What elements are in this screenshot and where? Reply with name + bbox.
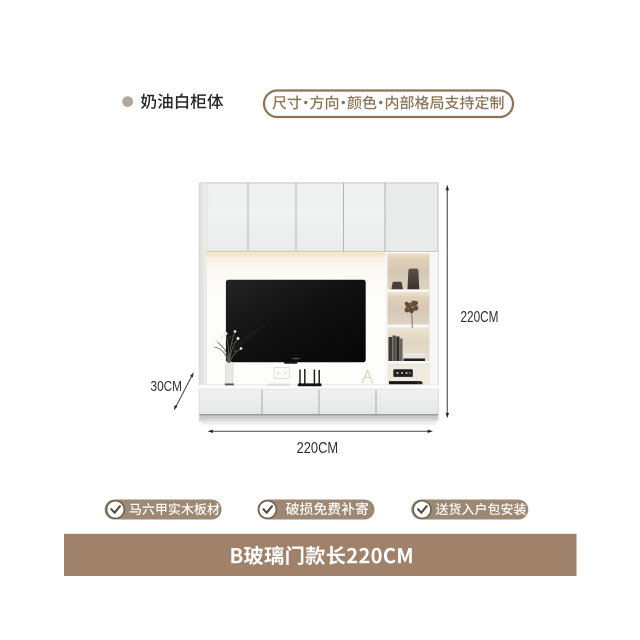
svg-text:220CM: 220CM (461, 309, 499, 326)
svg-text:220CM: 220CM (297, 440, 339, 457)
svg-text:30CM: 30CM (151, 378, 183, 395)
